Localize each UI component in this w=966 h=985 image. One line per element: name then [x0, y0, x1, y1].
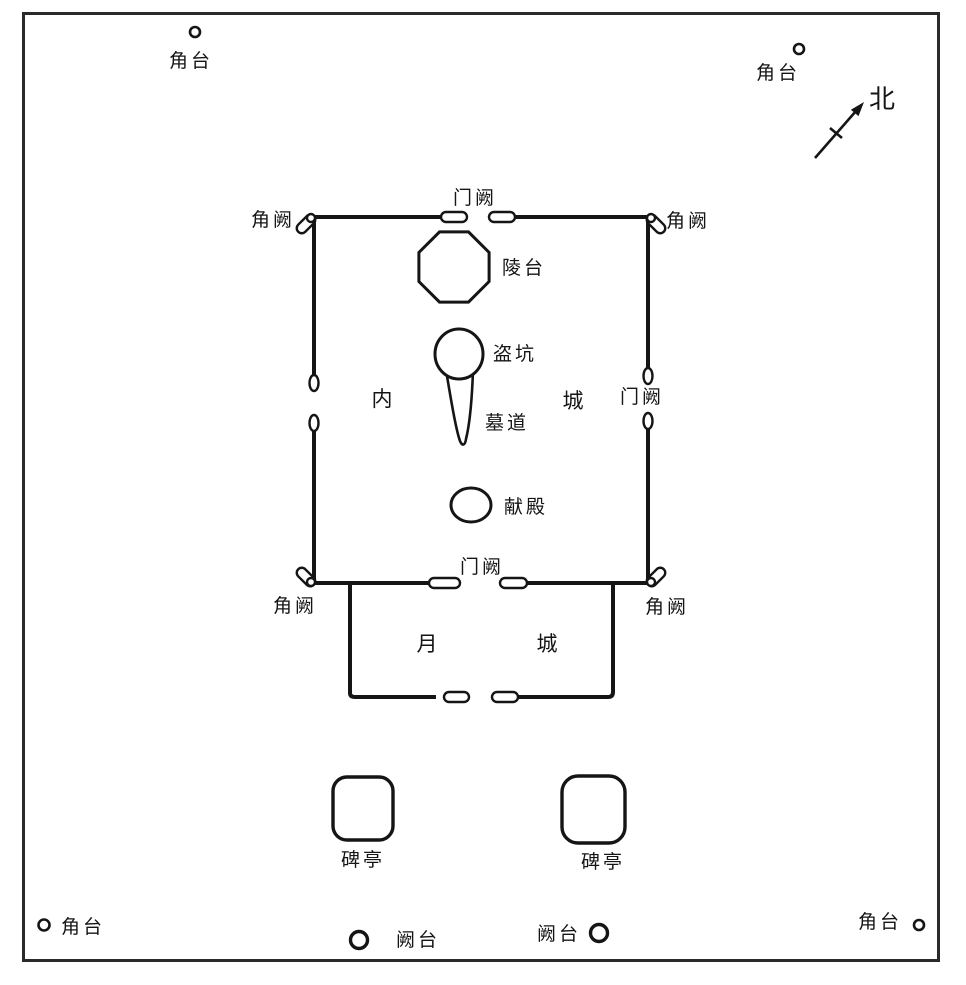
label-corner-platform-nw: 角台	[169, 50, 213, 72]
robbers-pit-circle	[435, 329, 483, 379]
mausoleum-platform-octagon	[419, 232, 489, 302]
north-gate-tower-west	[441, 212, 467, 222]
corner-platform-nw-circle	[190, 27, 200, 37]
label-tomb-passage: 墓道	[485, 412, 529, 434]
label-corner-platform-sw: 角台	[61, 916, 105, 938]
label-stele-pavilion-east: 碑亭	[581, 851, 625, 873]
south-gate-tower-west	[429, 578, 460, 588]
corner-platform-ne-circle	[794, 44, 804, 54]
north-gate-tower-east	[489, 212, 515, 222]
label-corner-tower-ne: 角阙	[666, 210, 710, 232]
label-mausoleum-platform: 陵台	[502, 257, 546, 279]
label-offering-hall: 献殿	[504, 496, 548, 518]
corner-platform-se-circle	[914, 920, 924, 930]
stele-pavilion-west-shape	[333, 777, 393, 840]
label-north: 北	[869, 85, 895, 114]
moon-gate-tower-east	[492, 692, 518, 702]
label-corner-tower-se: 角阙	[645, 596, 689, 618]
label-que-platform-east: 阙台	[537, 923, 581, 945]
south-gate-tower-east	[500, 578, 527, 588]
label-moon-city-yue: 月	[417, 632, 438, 656]
label-corner-tower-sw: 角阙	[273, 595, 317, 617]
label-que-platform-west: 阙台	[396, 929, 440, 951]
label-inner-city-cheng: 城	[563, 389, 584, 413]
north-arrow-line	[815, 111, 856, 158]
label-corner-tower-nw: 角阙	[251, 209, 295, 231]
label-gate-tower-north: 门阙	[453, 187, 497, 209]
label-stele-pavilion-west: 碑亭	[341, 849, 385, 871]
label-robbers-pit: 盗坑	[493, 343, 537, 365]
label-moon-city-cheng: 城	[537, 632, 558, 656]
label-corner-platform-se: 角台	[858, 911, 902, 933]
stele-pavilion-east-shape	[562, 776, 625, 843]
offering-hall-circle	[451, 488, 491, 522]
label-inner-city-nei: 内	[372, 387, 393, 411]
outer-boundary	[24, 14, 939, 961]
label-gate-tower-east: 门阙	[620, 386, 664, 408]
corner-platform-sw-circle	[39, 920, 50, 931]
label-gate-tower-south: 门阙	[460, 556, 504, 578]
que-platform-west-circle	[351, 932, 368, 949]
west-gate-tower-south	[310, 415, 319, 431]
label-corner-platform-ne: 角台	[756, 62, 800, 84]
north-arrow	[815, 102, 864, 158]
tomb-passage-shape	[446, 370, 473, 445]
tomb-site-plan-page: { "figure": { "kind": "archaeological-si…	[0, 0, 966, 985]
que-platform-east-circle	[591, 925, 608, 942]
site-plan-canvas: 角台 角台 北	[0, 0, 966, 985]
east-gate-tower-south	[644, 413, 653, 429]
moon-city-wall-east	[516, 584, 613, 697]
east-gate-tower-north	[644, 368, 653, 384]
west-gate-tower-north	[310, 375, 319, 391]
moon-gate-tower-west	[444, 692, 469, 702]
